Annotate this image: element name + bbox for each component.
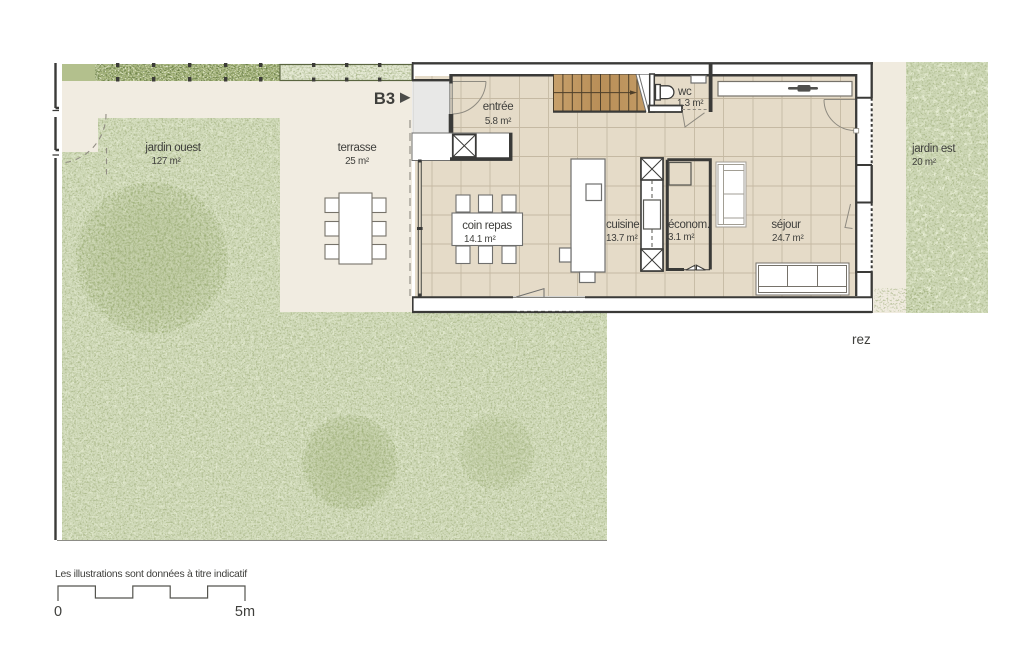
svg-text:14.1 m²: 14.1 m² xyxy=(464,234,496,245)
svg-text:séjour: séjour xyxy=(771,219,801,231)
svg-text:0: 0 xyxy=(54,604,62,620)
svg-text:Les illustrations sont données: Les illustrations sont données à titre i… xyxy=(55,569,247,580)
svg-text:B3: B3 xyxy=(374,90,395,108)
svg-text:127 m²: 127 m² xyxy=(152,156,182,167)
svg-text:20 m²: 20 m² xyxy=(912,157,937,168)
svg-text:cuisine: cuisine xyxy=(606,219,639,231)
svg-text:terrasse: terrasse xyxy=(338,142,377,154)
svg-text:jardin est: jardin est xyxy=(911,143,956,155)
svg-text:13.7 m²: 13.7 m² xyxy=(606,233,638,244)
svg-text:25 m²: 25 m² xyxy=(345,156,370,167)
svg-text:économ.: économ. xyxy=(668,219,710,231)
svg-text:jardin ouest: jardin ouest xyxy=(144,142,201,154)
svg-text:1.3 m²: 1.3 m² xyxy=(677,98,704,109)
svg-text:5m: 5m xyxy=(235,604,255,620)
svg-text:rez: rez xyxy=(852,332,871,347)
svg-text:5.8 m²: 5.8 m² xyxy=(485,116,512,127)
svg-text:3.1 m²: 3.1 m² xyxy=(668,232,695,243)
svg-text:coin repas: coin repas xyxy=(462,220,512,232)
svg-text:wc: wc xyxy=(677,86,692,98)
svg-text:entrée: entrée xyxy=(483,101,514,113)
svg-text:24.7 m²: 24.7 m² xyxy=(772,233,804,244)
